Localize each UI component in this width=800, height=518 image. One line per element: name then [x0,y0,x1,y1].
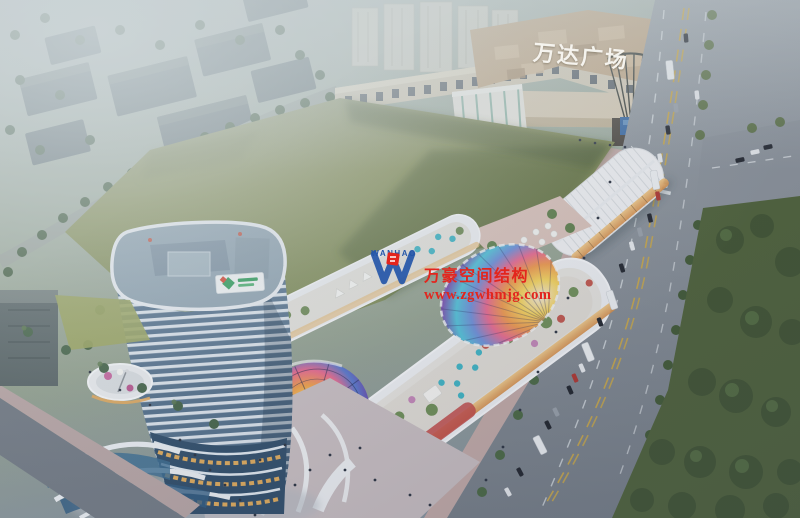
watermark-lines: 万豪空间结构 www.zgwhmjg.com [424,250,552,304]
watermark-company: 万豪空间结构 [424,262,552,286]
watermark-w-icon [370,250,418,286]
watermark-website: www.zgwhmjg.com [424,287,552,304]
watermark: WANHAO 万豪空间结构 www.zgwhmjg.com [370,250,552,304]
aerial-rendering-scene: 万达广场 WANHAO 万豪空间结构 www.zgwhmjg.com [0,0,800,518]
watermark-logo: WANHAO [370,250,418,258]
